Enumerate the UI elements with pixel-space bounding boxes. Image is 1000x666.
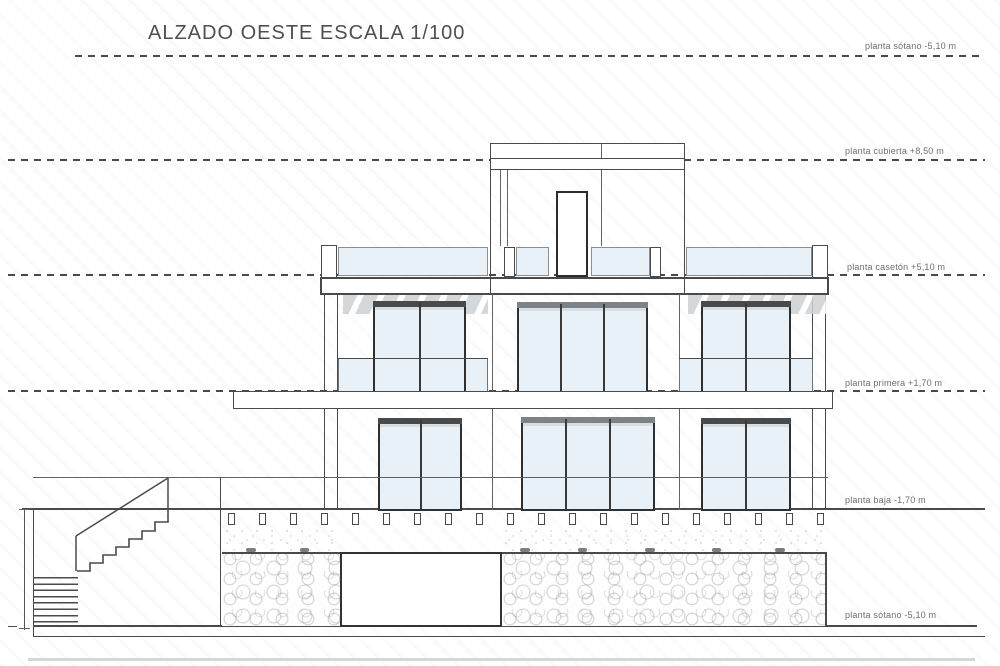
railing-top-line-left [338, 358, 488, 359]
rubble-fill-right [502, 552, 827, 626]
footing-posts-row [228, 513, 828, 526]
recess-wall-left-f0 [492, 409, 493, 510]
window-f1-left [373, 301, 466, 393]
window-f1-center-header [517, 302, 648, 308]
window-f0-right [701, 418, 791, 511]
roof-railing-post-left [321, 245, 337, 278]
footing-post [631, 513, 638, 525]
window-f0-left [378, 418, 462, 511]
roof-fascia-joint-right [684, 278, 685, 293]
grade-line [222, 552, 827, 554]
footing-post [600, 513, 607, 525]
dimension-tick-top [19, 509, 30, 510]
caseton-wall-left [490, 170, 491, 277]
window-f1-right-mullion [745, 303, 747, 391]
window-f0-center [521, 417, 655, 511]
dimension-tick-bottom [19, 628, 30, 629]
caseton-wall-mid-joint [601, 170, 602, 246]
roof-fascia-joint-left [490, 278, 491, 293]
footing-post [321, 513, 328, 525]
sheet-bottom-rule [28, 658, 975, 661]
roof-railing-glass-mid-right [591, 247, 650, 276]
stair-flight-hatch [34, 577, 78, 627]
footing-post [476, 513, 483, 525]
footing-post [352, 513, 359, 525]
window-f1-center [517, 302, 648, 393]
planting-stipple-left [224, 528, 338, 552]
first-floor-slab [233, 391, 833, 409]
railing-top-line-right [679, 358, 813, 359]
window-f0-center-header [521, 417, 655, 423]
drawing-title: ALZADO OESTE ESCALA 1/100 [148, 22, 465, 45]
caseton-door [556, 191, 588, 277]
footing-post [662, 513, 669, 525]
caseton-wall-left-inner-1 [500, 170, 501, 246]
level-label-baja: planta baja -1,70 m [845, 495, 926, 505]
stair-steps-drawing [70, 470, 230, 580]
window-f0-center-mullion-1 [565, 419, 567, 509]
roof-railing-glass-right [686, 247, 812, 276]
level-dash-left-bottom [8, 626, 17, 627]
footing-post [724, 513, 731, 525]
footing-post [259, 513, 266, 525]
footing-post [538, 513, 545, 525]
caseton-wall-left-inner-2 [507, 170, 508, 246]
recess-wall-left-f1 [492, 294, 493, 392]
recess-wall-right-f0 [679, 409, 680, 510]
caseton-roof-band-vjoint [601, 144, 602, 158]
level-label-sotano-bottom: planta sótano -5,10 m [845, 610, 936, 620]
basement-room-pool [340, 552, 502, 627]
window-f1-center-mullion-1 [560, 304, 562, 391]
roof-railing-glass-mid-left [516, 247, 549, 276]
footing-post [693, 513, 700, 525]
window-f1-center-mullion-2 [603, 304, 605, 391]
level-label-sotano-top: planta sótano -5,10 m [865, 41, 956, 51]
elevation-drawing-canvas: ALZADO OESTE ESCALA 1/100 planta sótano … [0, 0, 1000, 666]
roof-railing-glass-left [338, 247, 488, 276]
footing-post [290, 513, 297, 525]
caseton-roof-band [490, 143, 685, 170]
caseton-roof-band-divider [490, 158, 685, 159]
level-line-caseton [8, 274, 985, 276]
footing-post [414, 513, 421, 525]
footing-post [445, 513, 452, 525]
dimension-line-basement [24, 509, 25, 630]
rubble-fill-left [222, 552, 340, 626]
roof-railing-post-right [812, 245, 828, 278]
window-f0-left-mullion [420, 420, 422, 509]
level-label-cubierta: planta cubierta +8,50 m [845, 146, 944, 156]
roof-slab-fascia [320, 277, 829, 295]
ground-base-line [33, 636, 985, 637]
level-label-caseton: planta casetón +5,10 m [847, 262, 945, 272]
level-label-primera: planta primera +1,70 m [845, 378, 942, 388]
caseton-wall-right [684, 170, 685, 277]
window-f0-right-mullion [745, 420, 747, 509]
footing-post [507, 513, 514, 525]
footing-post [755, 513, 762, 525]
roof-railing-post-mid-right [650, 247, 661, 277]
footing-post [817, 513, 824, 525]
level-line-sotano-top [75, 55, 985, 57]
window-f1-right [701, 301, 791, 393]
roof-railing-post-mid-left [504, 247, 515, 277]
window-f1-left-mullion [419, 303, 421, 391]
window-f0-center-mullion-2 [609, 419, 611, 509]
footing-post [786, 513, 793, 525]
footing-post [383, 513, 390, 525]
footing-post [569, 513, 576, 525]
